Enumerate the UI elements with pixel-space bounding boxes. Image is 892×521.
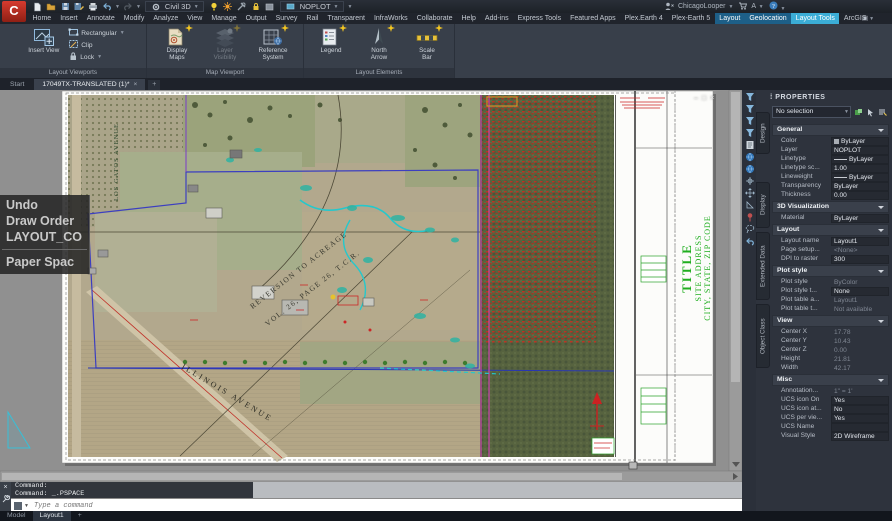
north-arrow-button[interactable]: NorthArrow [356,25,403,61]
property-value[interactable]: 2D Wireframe [831,432,889,441]
property-row: UCS per vie...Yes [772,413,889,422]
property-value-text: Layout1 [834,296,857,305]
rectangular-button[interactable]: Rectangular▼ [68,27,126,39]
linetype-glyph [834,159,847,160]
property-row: LayerNOPLOT [772,145,889,154]
property-value-text: 10.43 [834,337,851,346]
layer-name: NOPLOT [300,2,331,11]
menu-item-draw-order[interactable]: Draw Order [0,213,89,229]
button-label: Arrow [371,54,387,61]
aerial-photo [68,95,614,457]
property-value[interactable]: 0.00 [831,191,889,200]
property-label: Material [772,213,831,222]
new-feature-star-icon [233,24,241,34]
ribbon-tab-insert[interactable]: Insert [56,13,83,24]
property-value-text: NOPLOT [834,146,861,155]
property-value[interactable]: 17.78 [831,328,889,337]
property-label: Linetype sc... [772,163,831,172]
save-icon[interactable] [59,1,71,12]
new-feature-star-icon [185,24,193,34]
property-value[interactable]: 42.17 [831,364,889,373]
drawing-canvas[interactable]: TITLE SITE ADDRESS CITY, STATE, ZIP CODE… [0,90,742,482]
bulb-icon[interactable] [208,1,220,12]
property-label: Lineweight [772,172,831,181]
insert-view-icon [33,26,55,47]
help-icon[interactable]: ? ▼ [769,1,787,12]
property-row: Plot table a...Layout1 [772,295,889,304]
button-label: Bar [422,54,432,61]
ribbon-tab-survey[interactable]: Survey [271,13,302,24]
workspace-dropdown[interactable]: Civil 3D ▼ [145,1,204,12]
horizontal-scrollbar[interactable] [0,471,742,482]
ribbon-tab-help[interactable]: Help [457,13,480,24]
property-label: Thickness [772,190,831,199]
property-row: Plot styleByColor [772,277,889,286]
property-label: Visual Style [772,431,831,440]
new-layout-button[interactable]: + [71,511,89,521]
angle-icon[interactable] [745,200,755,210]
chevron-down-icon[interactable]: ▼ [24,503,29,509]
property-label: Layer [772,145,831,154]
property-value[interactable]: Yes [831,414,889,423]
property-value[interactable] [831,423,889,432]
infocenter-bar: ChicagoLooper ▼ A ▼ ? ▼ [663,1,788,12]
selection-value: No selection [776,107,813,117]
funnel-icon[interactable] [745,92,755,102]
street-label-los-gatos: LOS GATOS AVENUE [113,123,120,201]
property-value-text: Layout1 [834,237,857,246]
selection-grip[interactable] [629,462,637,469]
chevron-down-icon: ▼ [334,4,339,10]
ribbon-tab-rail[interactable]: Rail [302,13,323,24]
property-value-text: ByLayer [849,173,873,182]
property-value-text: 0.00 [834,191,847,200]
property-label: Plot style [772,277,831,286]
undo-icon[interactable] [101,1,113,12]
new-feature-star-icon [281,24,289,34]
funnel-icon[interactable] [745,104,755,114]
app-logo: C [9,3,18,18]
command-prompt-icon [14,502,22,510]
property-row: Visual Style2D Wireframe [772,431,889,440]
palette-tab-extended-data[interactable]: Extended Data [756,232,770,300]
property-value-text: ByLayer [849,155,873,164]
command-input[interactable] [32,501,742,511]
menu-item-undo[interactable]: Undo [0,197,89,213]
chevron-down-icon: ▼ [194,4,199,10]
properties-palette: ⁞ PROPERTIES No selection ▼ GeneralColor… [756,90,892,511]
property-value[interactable]: None [831,287,889,296]
properties-title-text: PROPERTIES [775,94,825,101]
customize-wrench-icon[interactable] [2,495,10,503]
vp-restore-button[interactable]: □ [702,95,710,102]
lock-button[interactable]: Lock▼ [68,51,126,63]
button-label: Scale [419,47,435,54]
app-store-cart-icon[interactable] [738,2,747,12]
property-row: Plot table t...Not available [772,304,889,313]
titleblock-address: SITE ADDRESS [694,235,703,302]
section-header-misc[interactable]: Misc [772,374,889,386]
property-value[interactable]: 10.43 [831,337,889,346]
properties-title: ⁞ PROPERTIES [770,94,888,101]
property-label: Height [772,354,831,363]
color-swatch [834,139,839,144]
button-label: Layer [217,47,233,54]
command-close-icon[interactable]: × [0,484,11,491]
ribbon-tab-layout[interactable]: Layout [715,13,745,24]
property-label: DPI to raster [772,254,831,263]
quick-select-icon[interactable] [877,107,887,117]
lock-icon[interactable] [250,1,262,12]
property-row: Thickness0.00 [772,190,889,199]
chevron-down-icon[interactable]: ▼ [136,4,141,10]
ribbon-tab-infraworks[interactable]: InfraWorks [369,13,412,24]
property-row: Plot style t...None [772,286,889,295]
panel-body: LegendNorthArrowScaleBar [304,24,454,61]
status-bar: ModelLayout1+ [0,511,892,521]
button-label: Insert View [28,47,59,54]
command-history-line: Command: _.PSPACE [15,490,253,498]
reference-system-button[interactable]: ReferenceSystem [250,25,297,61]
property-value[interactable]: No [831,405,889,414]
property-label: Linetype [772,154,831,163]
new-feature-star-icon [387,24,395,34]
property-label: Annotation... [772,386,831,395]
user-menu[interactable]: ChicagoLooper ▼ [678,3,734,10]
vp-close-button[interactable]: × [710,95,718,102]
ribbon-tab-arcgis[interactable]: ArcGIS [839,13,871,24]
file-tab-label: 17049TX-TRANSLATED (1)* [42,81,129,88]
new-tab-button[interactable]: + [148,80,160,90]
tools-icon[interactable] [236,1,248,12]
selection-row: No selection ▼ [772,106,888,118]
funnel-icon[interactable] [745,128,755,138]
property-value[interactable]: Not available [831,305,889,314]
chevron-down-icon: ▼ [844,107,849,117]
property-value-text: ByLayer [834,182,858,191]
pin-icon[interactable] [745,212,755,222]
chevron-down-icon: ▼ [759,4,764,10]
property-label: UCS Name [772,422,831,431]
property-value[interactable]: ByLayer [831,137,889,146]
close-icon[interactable]: × [134,81,138,88]
toggle-pickadd-icon[interactable] [853,107,863,117]
chevron-down-icon: ▼ [97,54,102,60]
property-row: Page setup...<None> [772,245,889,254]
ribbon-panel-map-viewport: DisplayMapsLayerVisibilityReferenceSyste… [147,24,304,78]
panel-title: Layout Viewports [0,68,146,78]
property-value-text: Yes [834,414,845,423]
property-row: UCS icon at...No [772,404,889,413]
menu-item-layout[interactable]: LAYOUT_CO [0,229,89,245]
lasso-icon[interactable] [745,224,755,234]
ribbon-tab-plex-earth-4[interactable]: Plex.Earth 4 [620,13,667,24]
sun-icon[interactable] [222,1,234,12]
ribbon-tab-plex-earth-5[interactable]: Plex-Earth 5 [667,13,715,24]
property-value[interactable]: Layout1 [831,296,889,305]
property-row: MaterialByLayer [772,213,889,222]
property-value[interactable]: 21.81 [831,355,889,364]
redo-icon[interactable] [122,1,134,12]
property-value[interactable]: ByColor [831,278,889,287]
side-toolbar [743,92,756,246]
button-label: Rectangular [81,30,117,37]
ribbon: Insert ViewRectangular▼ClipLock▼Layout V… [0,24,892,79]
property-row: Center Z0.00 [772,345,889,354]
app-menu-button[interactable]: C [2,1,26,22]
new-feature-star-icon [435,24,443,34]
property-label: Color [772,136,831,145]
workspace-label: Civil 3D [165,2,191,11]
display-maps-button[interactable]: DisplayMaps [154,25,201,61]
property-value[interactable]: 300 [831,255,889,264]
document-icon[interactable] [745,140,755,150]
scale-bar-button[interactable]: ScaleBar [404,25,451,61]
panel-body: Insert ViewRectangular▼ClipLock▼ [0,24,146,63]
ribbon-tab-featured-apps[interactable]: Featured Apps [566,13,621,24]
property-row: TransparencyByLayer [772,181,889,190]
property-label: Plot table t... [772,304,831,313]
chevron-down-icon: ▼ [781,6,786,12]
chevron-down-icon[interactable]: ▼ [348,4,353,10]
section-header-3d-visualization[interactable]: 3D Visualization [772,201,889,213]
ribbon-tab-manage[interactable]: Manage [207,13,241,24]
layout-tab-model[interactable]: Model [0,511,33,521]
gear-icon [150,1,162,12]
new-feature-star-icon [339,24,347,34]
property-value-text: Yes [834,396,845,405]
select-objects-icon[interactable] [865,107,875,117]
property-row: UCS Name [772,422,889,431]
ribbon-tab-home[interactable]: Home [28,13,56,24]
autodesk-account-icon[interactable]: A ▼ [751,3,764,10]
titleblock-title: TITLE [679,243,694,293]
section-header-layout[interactable]: Layout [772,224,889,236]
property-value-text: 1" = 1' [834,387,852,396]
globe-icon[interactable] [745,164,755,174]
property-value[interactable]: 0.00 [831,346,889,355]
property-label: UCS icon On [772,395,831,404]
button-label: Lock [80,54,94,61]
legend-button[interactable]: Legend [308,25,355,61]
ribbon-tab-transparent[interactable]: Transparent [323,13,369,24]
chevron-down-icon: ▼ [728,4,733,10]
property-row: Center Y10.43 [772,336,889,345]
layer-icon [285,1,297,12]
property-label: UCS per vie... [772,413,831,422]
button-label: North [371,47,386,54]
property-value[interactable]: ByLayer [831,155,889,164]
button-label: Clip [81,42,92,49]
svg-text:?: ? [772,3,775,10]
ribbon-tab-add-ins[interactable]: Add-ins [480,13,513,24]
user-name: ChicagoLooper [678,3,725,10]
property-row: Layout nameLayout1 [772,236,889,245]
command-history-text: Command: Command: _.PSPACE [11,482,253,498]
property-row: UCS icon OnYes [772,395,889,404]
property-label: Plot table a... [772,295,831,304]
crosshair-icon[interactable] [745,176,755,186]
command-window-grip[interactable]: × [0,482,11,511]
ribbon-tab-geolocation[interactable]: Geolocation [745,13,791,24]
layout-viewport: TITLE SITE ADDRESS CITY, STATE, ZIP CODE… [0,90,742,482]
sign-in-icon[interactable] [665,2,674,12]
chevron-down-icon[interactable]: ▼ [115,4,120,10]
property-value-text: 21.81 [834,355,851,364]
button-label: Display [167,47,188,54]
property-row: DPI to raster300 [772,254,889,263]
selection-dropdown[interactable]: No selection ▼ [772,106,851,118]
ribbon-tab-modify[interactable]: Modify [119,13,149,24]
property-value[interactable]: Yes [831,396,889,405]
property-row: LineweightByLayer [772,172,889,181]
linetype-glyph [834,177,847,178]
property-label: Page setup... [772,245,831,254]
property-row: Center X17.78 [772,327,889,336]
layer-dropdown[interactable]: NOPLOT ▼ [280,1,344,12]
button-label: Legend [320,47,341,54]
ribbon-panel-layout-viewports: Insert ViewRectangular▼ClipLock▼Layout V… [0,24,147,78]
property-value-text: ByLayer [834,214,858,223]
lock-icon [68,51,78,63]
menu-item-paper-space[interactable]: Paper Spac [0,254,89,270]
globe-icon[interactable] [745,152,755,162]
property-value[interactable]: 1" = 1' [831,387,889,396]
arrows-icon[interactable] [745,188,755,198]
property-value[interactable]: 1.00 [831,164,889,173]
command-line-window: × Command: Command: _.PSPACE ▼ [0,482,742,511]
property-value[interactable]: Layout1 [831,237,889,246]
clip-button[interactable]: Clip [68,39,126,51]
property-label: Center Y [772,336,831,345]
property-value-text: ByLayer [841,137,865,146]
drawing-state-icons [207,1,277,12]
swatch-icon[interactable] [264,1,276,12]
property-label: Center Z [772,345,831,354]
command-history-line: Command: [15,482,253,490]
panel-body: DisplayMapsLayerVisibilityReferenceSyste… [147,24,303,61]
property-value-text: No [834,405,842,414]
property-value-text: Not available [834,305,872,314]
ribbon-tab-row: HomeInsertAnnotateModifyAnalyzeViewManag… [28,13,892,24]
clip-icon [68,39,79,51]
drawing-window-controls: –□× [694,95,718,102]
file-tab-bar: Start17049TX-TRANSLATED (1)*×+ [0,78,892,90]
button-label: Reference [258,47,287,54]
undo-icon[interactable] [745,236,755,246]
property-row: ColorByLayer [772,136,889,145]
menu-separator [2,249,87,250]
ribbon-tab-layout-tools[interactable]: Layout Tools [791,13,839,24]
ribbon-tab-collaborate[interactable]: Collaborate [412,13,457,24]
section-header-general[interactable]: General [772,124,889,136]
funnel-icon[interactable] [745,116,755,126]
button-label: System [263,54,284,61]
panel-title: Layout Elements [304,68,454,78]
quick-access-toolbar: ▼▼ [30,1,142,12]
section-header-plot-style[interactable]: Plot style [772,265,889,277]
right-dock: ⁞ PROPERTIES No selection ▼ GeneralColor… [742,90,892,511]
palette-tab-display[interactable]: Display [756,182,770,228]
button-label: Maps [169,54,184,61]
folder-open-icon[interactable] [45,1,57,12]
palette-tab-object-class[interactable]: Object Class [756,304,770,368]
property-row: Width42.17 [772,363,889,372]
property-label: Center X [772,327,831,336]
property-value-text: 1.00 [834,164,847,173]
property-value[interactable]: NOPLOT [831,146,889,155]
property-value[interactable]: ByLayer [831,173,889,182]
properties-sections: GeneralColorByLayerLayerNOPLOTLinetypeBy… [772,122,889,440]
panel-small-column: Rectangular▼ClipLock▼ [68,25,126,63]
file-tab-drawing[interactable]: 17049TX-TRANSLATED (1)*× [34,79,145,90]
ribbon-tab-annotate[interactable]: Annotate [82,13,119,24]
property-row: Annotation...1" = 1' [772,386,889,395]
file-tab-label: Start [10,81,24,88]
property-value-text: 2D Wireframe [834,432,875,441]
ribbon-tab-view[interactable]: View [183,13,207,24]
layout-tab-layout1[interactable]: Layout1 [33,511,71,521]
ribbon-panel-layout-elements: LegendNorthArrowScaleBarLayout Elements [304,24,455,78]
insert-view-button[interactable]: Insert View [20,25,67,63]
section-header-view[interactable]: View [772,315,889,327]
ribbon-tab-analyze[interactable]: Analyze [149,13,183,24]
rectangular-icon [68,27,79,39]
property-value-text: ByColor [834,278,857,287]
property-value-text: 42.17 [834,364,851,373]
command-input-row: ▼ [11,498,742,512]
property-value-text: 300 [834,255,845,264]
button-label: Visibility [214,54,237,61]
titleblock-city: CITY, STATE, ZIP CODE [703,215,712,320]
property-value[interactable]: <None> [831,246,889,255]
property-label: Transparency [772,181,831,190]
file-tab-start[interactable]: Start [2,79,32,90]
property-row: LinetypeByLayer [772,154,889,163]
property-label: Width [772,363,831,372]
vp-minimize-button[interactable]: – [694,95,702,102]
ribbon-tab-express-tools[interactable]: Express Tools [513,13,565,24]
command-history: Command: Command: _.PSPACE [11,482,742,498]
property-value-text: 0.00 [834,346,847,355]
save-as-icon[interactable] [73,1,85,12]
property-row: Linetype sc...1.00 [772,163,889,172]
property-value-text: 17.78 [834,328,851,337]
property-row: Height21.81 [772,354,889,363]
property-value[interactable]: ByLayer [831,182,889,191]
ribbon-tab-output[interactable]: Output [241,13,271,24]
vertical-scrollbar[interactable] [729,90,742,471]
property-label: Plot style t... [772,286,831,295]
property-label: Layout name [772,236,831,245]
chevron-down-icon: ▼ [120,30,125,36]
property-value[interactable]: ByLayer [831,214,889,223]
layer-visibility-button[interactable]: LayerVisibility [202,25,249,61]
panel-title: Map Viewport [147,68,303,78]
property-value-text: <None> [834,246,857,255]
palette-tab-design[interactable]: Design [756,112,770,154]
property-value-text: None [834,287,850,296]
file-new-icon[interactable] [31,1,43,12]
context-menu-ghost: Undo Draw Order LAYOUT_CO Paper Spac [0,195,90,274]
property-label: UCS icon at... [772,404,831,413]
plot-icon[interactable] [87,1,99,12]
